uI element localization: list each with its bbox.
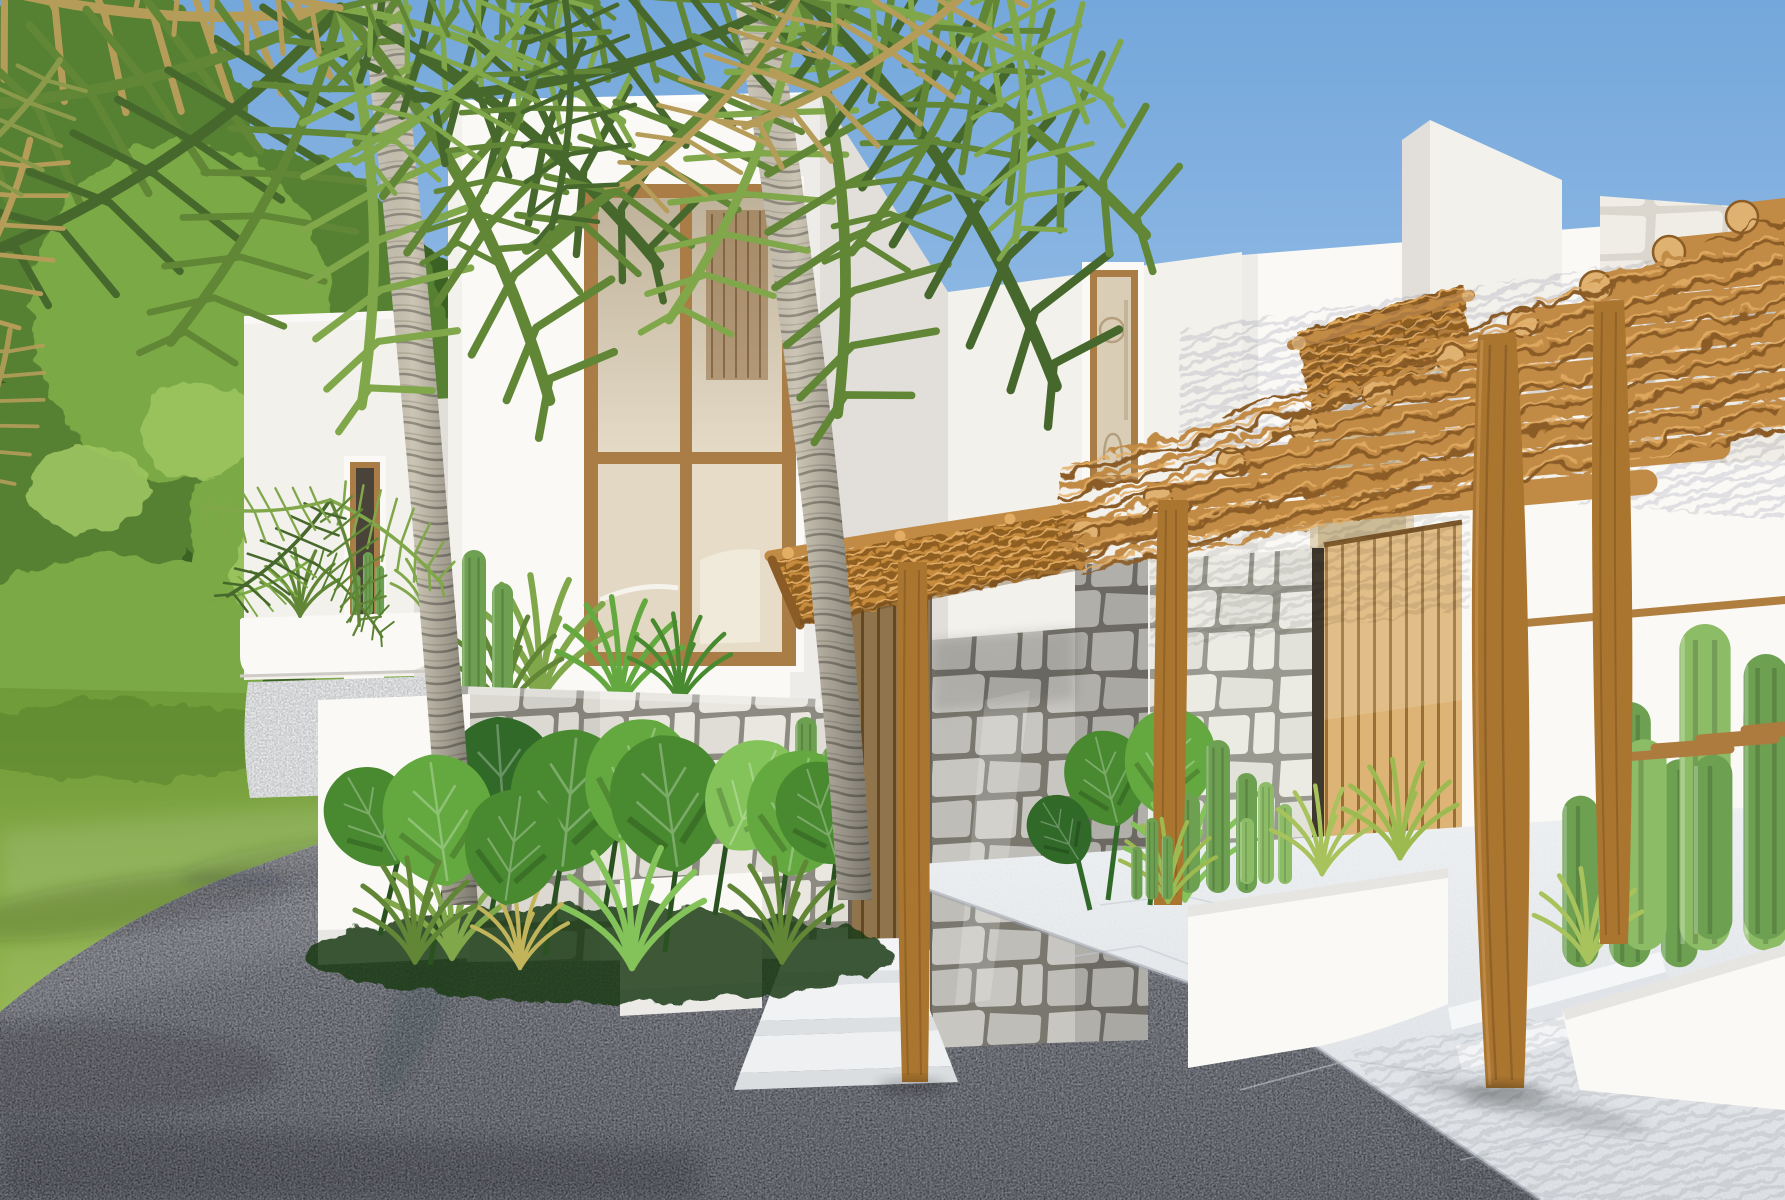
villa-balcony-parapet	[240, 612, 436, 676]
villa-exterior-render: Architectural rendering of a white tropi…	[0, 0, 1785, 1200]
post	[1592, 300, 1632, 944]
